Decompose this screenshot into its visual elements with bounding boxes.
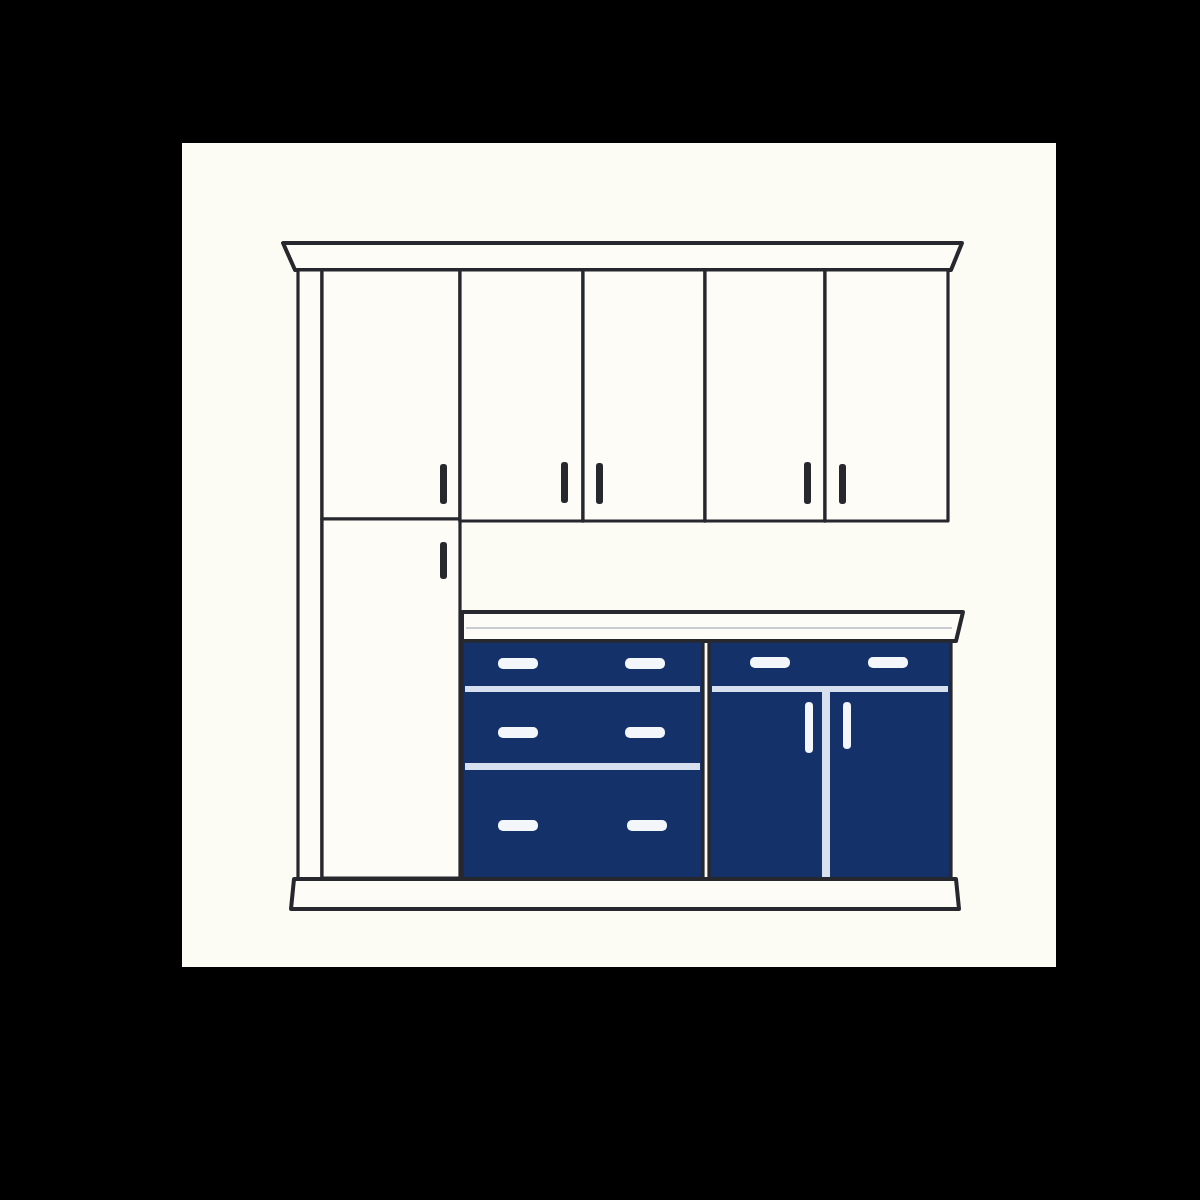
base-drawer-bank: [462, 641, 703, 879]
tall-cabinet-upper-door: [322, 270, 460, 519]
drawer-1-handle-left: [498, 658, 538, 669]
crown-molding: [283, 243, 962, 270]
door-unit-drawer-handle-left: [750, 657, 790, 668]
drawer-3-handle-right: [627, 820, 667, 831]
door-unit-drawer-divider: [712, 686, 948, 692]
wall-door-4-handle: [839, 464, 846, 504]
countertop: [462, 612, 963, 641]
drawer-divider-1: [465, 686, 700, 692]
base-door-unit: [709, 641, 951, 879]
wall-cabinets: [460, 270, 948, 521]
door-unit-left-door-handle: [805, 702, 813, 753]
drawer-bank-body: [462, 641, 703, 879]
drawer-divider-2: [465, 763, 700, 770]
tall-lower-door-handle: [440, 542, 447, 579]
tall-upper-door-handle: [440, 464, 447, 504]
drawer-3-handle-left: [498, 820, 538, 831]
cabinet-elevation-drawing: [0, 0, 1200, 1200]
illustration-stage: [0, 0, 1200, 1200]
door-unit-drawer-handle-right: [868, 657, 908, 668]
tall-pantry-cabinet: [298, 270, 460, 880]
toe-kick: [291, 879, 959, 909]
drawer-1-handle-right: [625, 658, 665, 669]
door-unit-right-door-handle: [843, 702, 851, 749]
tall-cabinet-lower-door: [322, 519, 460, 878]
wall-door-3-handle: [804, 462, 811, 504]
tall-cabinet-left-stile: [298, 270, 322, 880]
wall-door-1-handle: [561, 462, 568, 503]
wall-door-2-handle: [596, 463, 603, 504]
drawer-2-handle-right: [625, 727, 665, 738]
drawer-2-handle-left: [498, 727, 538, 738]
door-unit-center-split: [822, 692, 830, 877]
countertop-slab: [462, 612, 963, 641]
